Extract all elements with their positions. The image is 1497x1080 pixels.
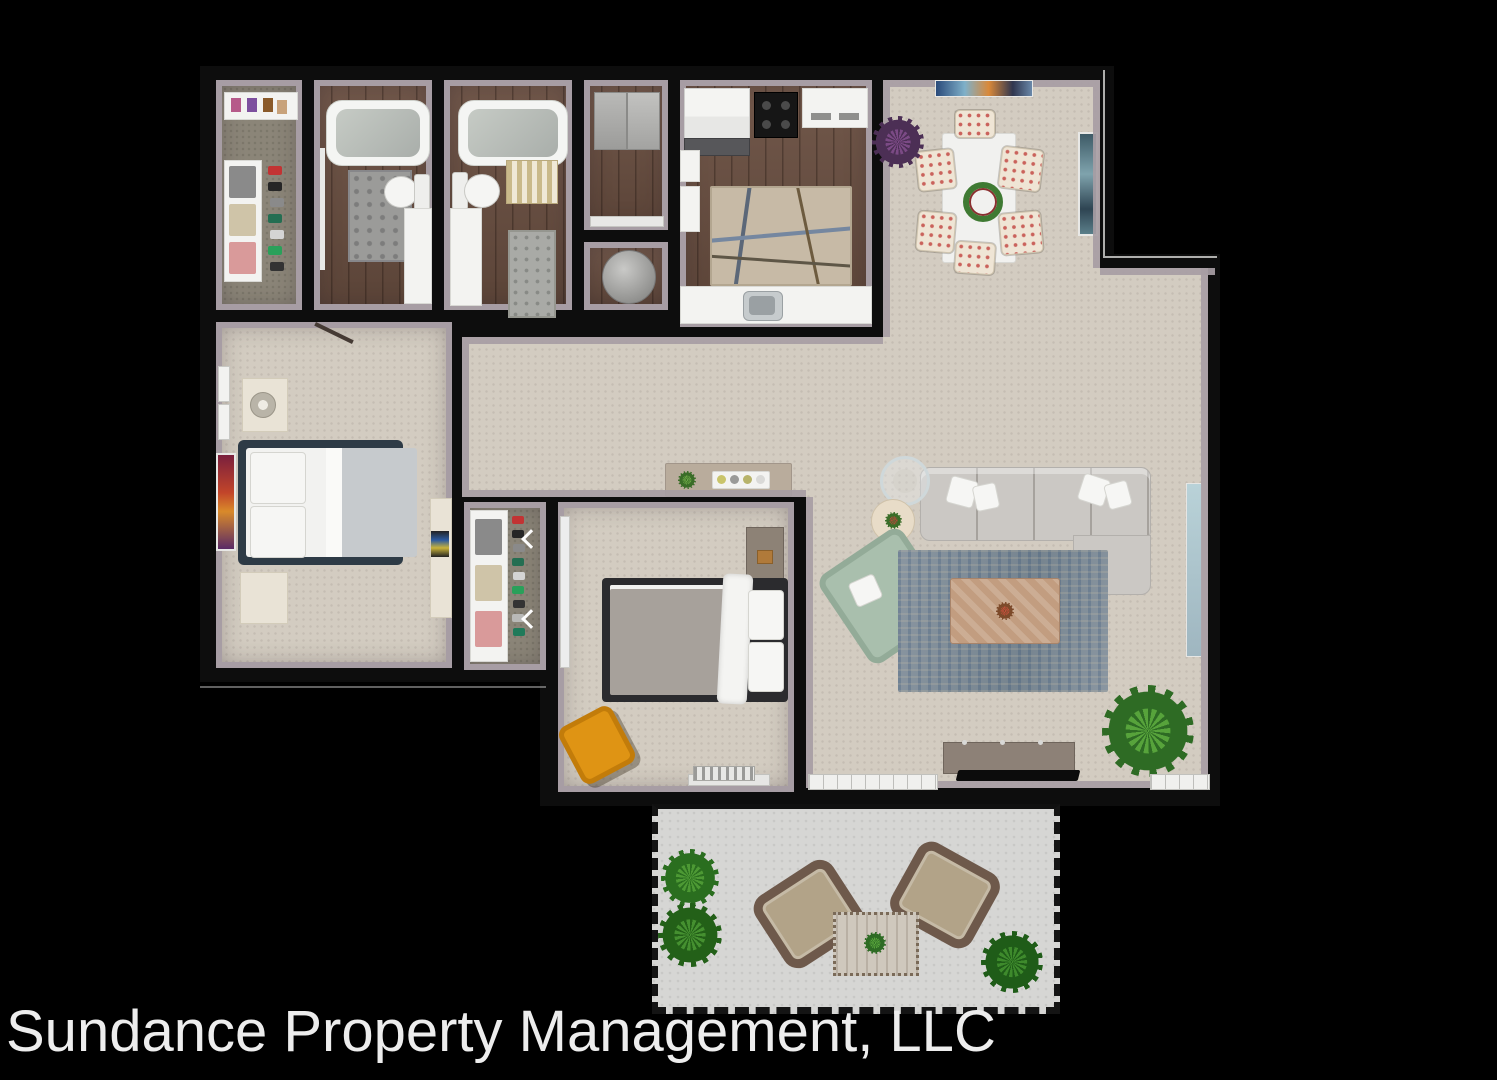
wall-mirror <box>1186 483 1202 657</box>
tv <box>956 770 1081 781</box>
cabinet-right <box>627 92 660 150</box>
door-panel <box>320 148 325 270</box>
wall-cap-hall-bottom <box>462 490 806 497</box>
window-1 <box>218 366 230 402</box>
striped-rug <box>506 160 558 204</box>
bed-blanket <box>610 585 728 695</box>
bed-runner <box>326 448 342 557</box>
vanity <box>404 208 432 304</box>
folded-clothes-pink <box>229 242 256 274</box>
dresser-tv <box>431 531 449 557</box>
bathtub-basin <box>468 109 558 157</box>
cabinet-left <box>594 92 627 150</box>
kitchen <box>680 80 872 327</box>
storage-closet <box>584 80 668 230</box>
master-bed-frame <box>238 440 403 565</box>
shoe-shelf <box>224 92 298 120</box>
stove <box>754 92 798 138</box>
patio-hedge-upper <box>661 849 719 907</box>
closet-door-back <box>560 516 570 668</box>
sofa-pillow-2 <box>972 482 1001 512</box>
patio-hedge-lower <box>658 903 722 967</box>
coffee-table <box>950 578 1060 644</box>
master-dresser <box>430 498 452 618</box>
wreath-centerpiece <box>963 182 1003 222</box>
wall-cap-step <box>1100 268 1215 275</box>
toilet-bowl <box>384 176 418 208</box>
wall-cap-dining-right <box>1093 87 1100 268</box>
living-floor-plant <box>1102 685 1194 777</box>
folded-clothes-pink <box>475 611 502 647</box>
dining-chair-right-1 <box>998 146 1045 193</box>
dining-wall-art <box>935 80 1033 97</box>
bed-pillow-2 <box>748 642 784 692</box>
sink-basin <box>749 296 775 315</box>
stove-burner <box>762 101 771 110</box>
bifold-door-mark-1 <box>521 529 541 549</box>
bench <box>240 572 288 624</box>
patio-table <box>833 912 919 976</box>
toilet-tank <box>414 174 430 212</box>
console-decor-tray <box>712 471 770 489</box>
counter-step-upper <box>680 150 700 182</box>
counter-step-lower <box>680 186 700 232</box>
watermark-caption: Sundance Property Management, LLC <box>6 998 996 1065</box>
bedroom-2 <box>558 502 794 792</box>
exterior-baseline <box>200 686 546 688</box>
folded-clothes-gray <box>475 519 502 555</box>
tray-dishes <box>717 475 726 484</box>
folded-clothes-tan <box>475 565 502 601</box>
armchair-pillow <box>847 573 883 608</box>
refrigerator <box>684 88 750 140</box>
shoe-rack <box>512 516 524 524</box>
bedroom2-bed-frame <box>602 578 788 702</box>
wall-cap-living-right <box>1201 268 1208 788</box>
exterior-ledge-line-horizontal <box>1103 256 1217 258</box>
dining-chair-left-1 <box>915 148 957 192</box>
bath-mat <box>508 230 556 318</box>
bed-pillow-bottom <box>250 506 306 558</box>
patio-table-plant <box>864 932 886 954</box>
coffee-table-decor <box>996 602 1014 620</box>
vanity <box>450 208 482 306</box>
window-2 <box>218 404 230 440</box>
console-plant <box>678 471 696 489</box>
wall-cap-hall-top <box>469 337 883 344</box>
sink-counter <box>680 286 872 324</box>
bifold-door-mark-2 <box>521 609 541 629</box>
patio-corner-plant <box>981 931 1043 993</box>
master-bedroom <box>216 322 452 668</box>
folded-clothes-beige <box>229 204 256 236</box>
rug-line-4 <box>710 254 852 268</box>
counter-strip <box>590 216 664 227</box>
bed-blanket <box>342 448 417 557</box>
master-wall-art <box>216 453 236 551</box>
kitchen-rug <box>710 186 852 286</box>
floor-plan-image: Sundance Property Management, LLC <box>0 0 1497 1080</box>
wall-cap-bedroom2-right <box>806 497 813 781</box>
rug-line-2 <box>710 225 852 244</box>
bathtub-basin <box>336 109 420 157</box>
clothes-shelving <box>224 160 262 282</box>
appliance-counter <box>802 88 868 128</box>
exterior-ledge-line-vertical <box>1103 70 1105 256</box>
bathtub <box>458 100 568 166</box>
appliance-slots <box>811 113 831 120</box>
bathtub <box>326 100 430 166</box>
baseboard-heater <box>693 766 755 781</box>
kitchen-sink <box>743 291 783 321</box>
living-window-sill <box>1150 774 1210 790</box>
dining-chair-top <box>955 110 995 138</box>
dining-chair-right-2 <box>998 210 1044 256</box>
bed-pillow-top <box>250 452 306 504</box>
dining-chair-bottom <box>954 241 996 276</box>
hanging-clothes <box>268 166 282 175</box>
walk-in-closet <box>216 80 302 310</box>
hall-closet <box>464 502 546 670</box>
dining-corner-plant <box>872 116 924 168</box>
wall-cap-hall-left <box>462 337 469 490</box>
side-table-plant <box>885 512 902 529</box>
patio <box>652 804 1060 1014</box>
console-knobs <box>962 740 967 745</box>
toilet-bowl <box>464 174 500 208</box>
patio-door-sill <box>808 774 938 790</box>
master-door-swing <box>314 322 354 344</box>
bathroom-1 <box>314 80 432 310</box>
closet-shelving <box>470 510 508 662</box>
bed-pillow-1 <box>748 590 784 640</box>
dining-chair-left-2 <box>915 210 956 253</box>
folded-clothes-gray <box>229 166 256 198</box>
rug-line-3 <box>795 186 825 286</box>
utility-closet <box>584 242 668 310</box>
table-lamp <box>250 392 276 418</box>
dresser-item <box>757 550 773 564</box>
bathroom-2 <box>444 80 572 310</box>
water-heater <box>602 250 656 304</box>
shoe-items <box>231 98 241 112</box>
desk-chair <box>555 703 638 788</box>
